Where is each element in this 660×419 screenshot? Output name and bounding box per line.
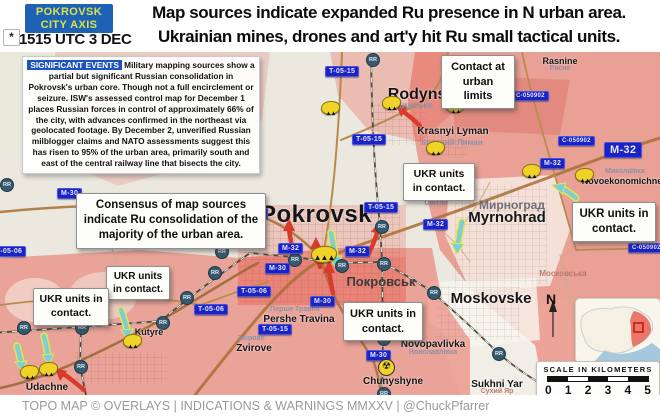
place-zvirove: Zvirove: [236, 343, 272, 354]
road-label-t0506-2: T-05-06: [194, 304, 228, 315]
road-label-m32-1: M-32: [278, 243, 303, 254]
callout-contact-urban-limits: Contact at urban limits: [441, 55, 515, 109]
callout-ukr-contact-4: UKR units in contact.: [33, 288, 109, 326]
scale-segments: [547, 376, 649, 382]
callout-consensus: Consensus of map sources indicate Ru con…: [76, 193, 266, 249]
place-rasnine-ua: Рясне: [550, 65, 571, 72]
road-label-m30-4: M-30: [310, 296, 335, 307]
place-krasnyi-lyman: Krasnyi Lyman: [417, 126, 488, 137]
place-chunyshyne: Chunyshyne: [363, 376, 423, 387]
scale-title: SCALE IN KILOMETERS: [537, 365, 659, 374]
road-label-t0515-4: T-05-15: [258, 324, 292, 335]
railway-badge: RR: [17, 321, 31, 335]
railway-badge: RR: [375, 220, 389, 234]
road-label-t0506-1: T-05-06: [237, 286, 271, 297]
road-label-m30-3: M-30: [265, 263, 290, 274]
timestamp: 1515 UTC 3 DEC: [19, 31, 132, 48]
place-mykolaivka-ua: Миколаївка: [605, 168, 645, 175]
road-label-m32-4: M-32: [540, 158, 565, 169]
road-label-c050902-3: C-050902: [628, 243, 660, 253]
railway-badge: RR: [208, 266, 222, 280]
place-moskovska-ua: Московська: [539, 269, 586, 278]
north-indicator: N: [546, 291, 556, 307]
axis-title-box: POKROVSK CITY AXIS: [25, 4, 113, 33]
railway-badge: RR: [427, 286, 441, 300]
railway-badge: RR: [366, 53, 380, 67]
place-sville-ua: Світле: [425, 200, 448, 207]
railway-badge: RR: [288, 253, 302, 267]
road-label-t0515-3: T-05-15: [364, 202, 398, 213]
place-pokrovsk: Pokrovsk: [260, 201, 372, 229]
radiation-icon: ☢: [378, 359, 395, 376]
significant-events-box: SIGNIFICANT EVENTS Military mapping sour…: [22, 56, 260, 174]
place-novopavlivka-ua: Новопавлівка: [409, 349, 457, 356]
road-label-m32-5: M-32: [604, 142, 642, 158]
explosion-icon-cluster: ▲▲▲: [311, 246, 337, 263]
callout-ukr-contact-1: UKR units in contact.: [403, 163, 475, 201]
place-myrnohrad: Myrnohrad: [468, 209, 546, 226]
callout-ukr-contact-2: UKR units in contact.: [572, 202, 656, 242]
headline: Map sources indicate expanded Ru presenc…: [118, 1, 660, 49]
header-bar: POKROVSK CITY AXIS * 1515 UTC 3 DEC Map …: [0, 0, 660, 52]
road-label-m32-2: M-32: [345, 246, 370, 257]
railway-badge: RR: [377, 257, 391, 271]
axis-title-line1: POKROVSK: [36, 6, 102, 19]
footer-credit: TOPO MAP © OVERLAYS | INDICATIONS & WARN…: [0, 395, 660, 419]
significant-events-label: SIGNIFICANT EVENTS: [27, 60, 122, 70]
place-pershe-travina-ua: Перше Травня: [270, 306, 320, 313]
place-udachne: Udachne: [26, 382, 68, 393]
railway-badge: RR: [335, 259, 349, 273]
place-sukhni-yar: Sukhni Yar: [471, 379, 523, 390]
road-label-c050902-1: C-050902: [512, 91, 549, 101]
headline-line2: Ukrainian mines, drones and art'y hit Ru…: [118, 25, 660, 49]
place-pokrovsk-ua: Покровськ: [346, 274, 415, 289]
road-label-c050902-2: C-050902: [558, 136, 595, 146]
railway-badge: RR: [180, 291, 194, 305]
road-label-t0515-2: T-05-15: [352, 134, 386, 145]
road-label-t0515-1: T-05-15: [325, 66, 359, 77]
callout-ukr-contact-3: UKR units in contact.: [106, 266, 170, 300]
axis-title-line2: CITY AXIS: [41, 19, 98, 32]
headline-line1: Map sources indicate expanded Ru presenc…: [118, 1, 660, 25]
railway-badge: RR: [492, 347, 506, 361]
significant-events-text: Military mapping sources show a partial …: [28, 60, 254, 168]
road-label-t0506-3: T-05-06: [0, 246, 26, 257]
place-rasnine: Rasnine: [542, 56, 577, 66]
railway-badge: RR: [0, 178, 14, 192]
place-moskovske: Moskovske: [451, 290, 532, 307]
pokrovsk-situation-map: POKROVSK CITY AXIS * 1515 UTC 3 DEC Map …: [0, 0, 660, 419]
place-zvirove-ua: Звірове: [237, 335, 264, 342]
ukraine-outline: [576, 299, 660, 362]
inset-locator-map: [575, 298, 660, 363]
asterisk-icon: *: [3, 29, 20, 46]
road-label-m32-3: M-32: [423, 219, 448, 230]
railway-badge: RR: [74, 360, 88, 374]
callout-ukr-contact-5: UKR units in contact.: [343, 302, 423, 341]
place-novoekonomichne: Novoekonomichne: [582, 176, 660, 186]
